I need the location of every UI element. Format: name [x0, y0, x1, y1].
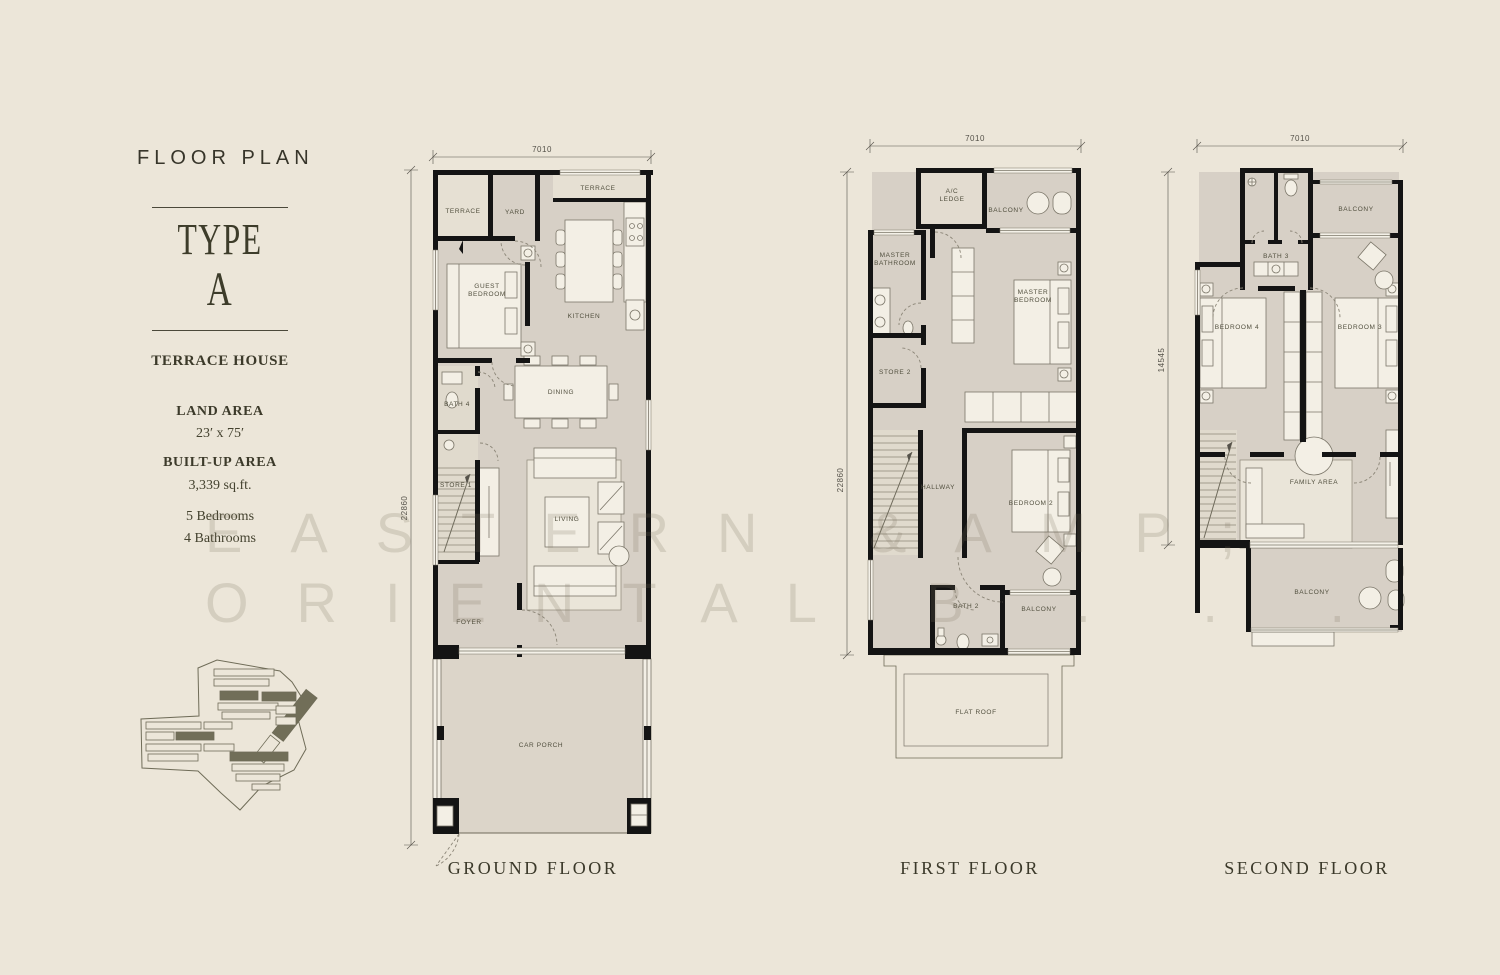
site-plan-map	[141, 660, 317, 810]
floor-plan-page: { "colors": {"background":"#ece6d9","flo…	[0, 0, 1500, 975]
room-label-guest-1: GUEST	[474, 283, 499, 290]
room-label-dining: DINING	[548, 389, 574, 396]
room-label-bath3: BATH 3	[1263, 253, 1289, 260]
floor-plans-graphic: 7010 22860	[0, 0, 1500, 975]
room-label-ac-2: LEDGE	[939, 196, 964, 203]
caption-ground-floor: GROUND FLOOR	[413, 858, 653, 879]
room-label-flat-roof: FLAT ROOF	[955, 709, 996, 716]
room-label-terrace-b: TERRACE	[580, 185, 615, 192]
room-label-kitchen: KITCHEN	[568, 313, 601, 320]
second-width-dim: 7010	[1290, 134, 1310, 143]
room-label-mbed-1: MASTER	[1018, 289, 1049, 296]
room-label-mbath-2: BATHROOM	[874, 260, 916, 267]
room-label-terrace-a: TERRACE	[445, 208, 480, 215]
first-floor-plan: 7010 22860	[836, 134, 1085, 758]
room-label-yard: YARD	[505, 209, 525, 216]
room-label-mbath-1: MASTER	[880, 252, 911, 259]
first-height-dim: 22860	[836, 468, 845, 493]
room-label-store2: STORE 2	[879, 369, 911, 376]
ground-width-dim: 7010	[532, 145, 552, 154]
room-label-bath4: BATH 4	[444, 401, 470, 408]
room-label-bedroom2: BEDROOM 2	[1009, 500, 1053, 507]
caption-second-floor: SECOND FLOOR	[1187, 858, 1427, 879]
room-label-balcony-top: BALCONY	[988, 207, 1023, 214]
room-label-balcony-bottom: BALCONY	[1021, 606, 1056, 613]
room-label-mbed-2: BEDROOM	[1014, 297, 1052, 304]
room-label-bath2: BATH 2	[953, 603, 979, 610]
first-width-dim: 7010	[965, 134, 985, 143]
room-label-balcony-bottom2: BALCONY	[1294, 589, 1329, 596]
room-label-foyer: FOYER	[456, 619, 481, 626]
room-label-balcony-top2: BALCONY	[1338, 206, 1373, 213]
second-height-dim: 14545	[1157, 348, 1166, 373]
room-label-ac-1: A/C	[946, 188, 959, 195]
ground-floor-plan: 7010 22860	[400, 145, 655, 866]
room-label-hallway: HALLWAY	[921, 484, 955, 491]
second-floor-plan: 7010 14545	[1157, 134, 1407, 646]
room-label-bedroom3: BEDROOM 3	[1338, 324, 1382, 331]
room-label-guest-2: BEDROOM	[468, 291, 506, 298]
ground-height-dim: 22860	[400, 496, 409, 521]
caption-first-floor: FIRST FLOOR	[850, 858, 1090, 879]
room-label-bedroom4: BEDROOM 4	[1215, 324, 1259, 331]
room-label-car-porch: CAR PORCH	[519, 742, 563, 749]
room-label-family-area: FAMILY AREA	[1290, 479, 1338, 486]
room-label-store1: STORE 1	[440, 482, 472, 489]
room-label-living: LIVING	[555, 516, 580, 523]
